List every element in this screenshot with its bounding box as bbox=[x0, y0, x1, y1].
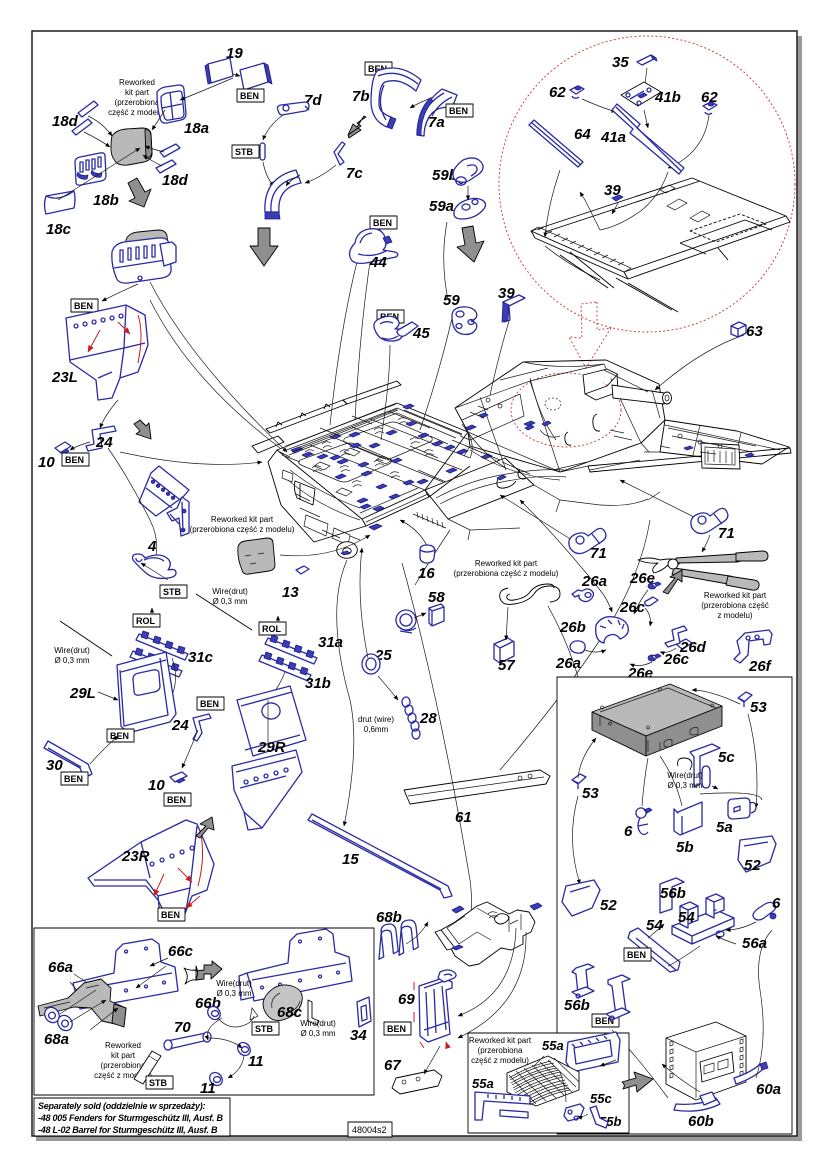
svg-text:Wire(drut): Wire(drut) bbox=[216, 979, 252, 988]
svg-text:68c: 68c bbox=[277, 1004, 303, 1021]
svg-text:Wire(drut): Wire(drut) bbox=[54, 646, 90, 655]
svg-text:53: 53 bbox=[582, 785, 599, 802]
svg-text:59: 59 bbox=[443, 292, 460, 309]
svg-text:15: 15 bbox=[342, 851, 359, 868]
svg-text:5c: 5c bbox=[718, 749, 735, 766]
svg-text:kit part: kit part bbox=[125, 88, 150, 97]
svg-text:Ø 0,3 mm: Ø 0,3 mm bbox=[300, 1029, 335, 1038]
svg-text:10: 10 bbox=[148, 777, 165, 794]
svg-text:STB: STB bbox=[255, 1024, 274, 1034]
svg-text:31b: 31b bbox=[305, 675, 331, 692]
svg-text:ROL: ROL bbox=[262, 624, 282, 634]
svg-text:kit part: kit part bbox=[111, 1051, 136, 1060]
svg-text:66a: 66a bbox=[48, 959, 73, 976]
svg-text:STB: STB bbox=[163, 587, 182, 597]
svg-text:69: 69 bbox=[398, 991, 415, 1008]
svg-text:26c: 26c bbox=[619, 599, 646, 616]
svg-text:67: 67 bbox=[384, 1057, 401, 1074]
svg-text:26d: 26d bbox=[679, 639, 707, 656]
svg-text:STB: STB bbox=[149, 1078, 168, 1088]
svg-text:0,6mm: 0,6mm bbox=[364, 725, 389, 734]
svg-text:18d: 18d bbox=[162, 172, 189, 189]
svg-text:część z modelu): część z modelu) bbox=[471, 1056, 529, 1065]
svg-text:-48 L-02 Barrel for Sturmgesch: -48 L-02 Barrel for Sturmgeschütz III, A… bbox=[38, 1125, 218, 1135]
svg-text:Reworked: Reworked bbox=[105, 1041, 141, 1050]
svg-text:(przerobiona: (przerobiona bbox=[478, 1046, 523, 1055]
svg-text:48004s2: 48004s2 bbox=[352, 1125, 387, 1135]
svg-text:7b: 7b bbox=[352, 88, 370, 105]
svg-text:7a: 7a bbox=[428, 114, 445, 131]
svg-text:54: 54 bbox=[646, 917, 663, 934]
svg-text:(przerobiona część z modelu): (przerobiona część z modelu) bbox=[454, 569, 559, 578]
svg-text:7c: 7c bbox=[346, 165, 363, 182]
svg-text:Reworked kit part: Reworked kit part bbox=[475, 559, 538, 568]
svg-text:70: 70 bbox=[174, 1019, 191, 1036]
svg-text:23R: 23R bbox=[121, 848, 150, 865]
svg-text:18a: 18a bbox=[184, 120, 209, 137]
svg-text:z modelu): z modelu) bbox=[717, 611, 752, 620]
svg-text:Wire(drut): Wire(drut) bbox=[212, 587, 248, 596]
svg-text:4: 4 bbox=[147, 538, 157, 555]
svg-text:10: 10 bbox=[38, 454, 55, 471]
svg-text:(przerobiona część z modelu): (przerobiona część z modelu) bbox=[190, 525, 295, 534]
svg-text:13: 13 bbox=[282, 584, 299, 601]
svg-text:30: 30 bbox=[46, 757, 63, 774]
svg-text:23L: 23L bbox=[51, 369, 78, 386]
svg-text:28: 28 bbox=[419, 710, 437, 727]
svg-text:62: 62 bbox=[549, 84, 566, 101]
svg-text:BEN: BEN bbox=[449, 106, 468, 116]
svg-text:55a: 55a bbox=[542, 1038, 564, 1053]
svg-text:60b: 60b bbox=[688, 1113, 714, 1130]
svg-text:BEN: BEN bbox=[240, 91, 259, 101]
svg-text:56b: 56b bbox=[660, 885, 686, 902]
svg-text:BEN: BEN bbox=[110, 731, 129, 741]
svg-text:61: 61 bbox=[455, 809, 472, 826]
svg-text:(przerobiona: (przerobiona bbox=[101, 1061, 146, 1070]
svg-text:60a: 60a bbox=[756, 1081, 781, 1098]
svg-text:Ø 0,3 mm: Ø 0,3 mm bbox=[54, 656, 89, 665]
svg-text:64: 64 bbox=[574, 126, 591, 143]
svg-text:53: 53 bbox=[750, 699, 767, 716]
svg-text:6: 6 bbox=[772, 895, 781, 912]
svg-text:BEN: BEN bbox=[200, 699, 219, 709]
svg-text:Ø 0,3 mm: Ø 0,3 mm bbox=[216, 989, 251, 998]
svg-text:BEN: BEN bbox=[64, 774, 83, 784]
svg-text:18d: 18d bbox=[52, 113, 79, 130]
svg-text:26a: 26a bbox=[555, 655, 581, 672]
svg-text:26a: 26a bbox=[581, 573, 607, 590]
svg-text:66c: 66c bbox=[168, 943, 194, 960]
svg-text:26f: 26f bbox=[748, 658, 773, 675]
svg-text:(przerobiona część: (przerobiona część bbox=[701, 601, 769, 610]
svg-text:24: 24 bbox=[171, 717, 189, 734]
svg-text:Reworked kit part: Reworked kit part bbox=[704, 591, 767, 600]
svg-text:(przerobiona: (przerobiona bbox=[115, 98, 160, 107]
svg-text:71: 71 bbox=[718, 525, 735, 542]
svg-text:58: 58 bbox=[428, 589, 445, 606]
svg-text:BEN: BEN bbox=[167, 795, 186, 805]
svg-text:Ø 0,3 mm: Ø 0,3 mm bbox=[212, 597, 247, 606]
svg-text:41b: 41b bbox=[654, 89, 681, 106]
svg-text:57: 57 bbox=[498, 657, 515, 674]
svg-text:71: 71 bbox=[590, 545, 607, 562]
svg-text:24: 24 bbox=[95, 434, 113, 451]
svg-text:Separately sold (oddzielnie w: Separately sold (oddzielnie w sprzedaży)… bbox=[38, 1101, 206, 1111]
svg-text:BEN: BEN bbox=[627, 950, 646, 960]
svg-text:STB: STB bbox=[235, 147, 254, 157]
svg-text:44: 44 bbox=[369, 254, 387, 271]
svg-text:35: 35 bbox=[612, 54, 629, 71]
svg-text:5a: 5a bbox=[716, 819, 733, 836]
svg-text:-48 005 Fenders for Sturmgesch: -48 005 Fenders for Sturmgeschütz III, A… bbox=[38, 1113, 223, 1123]
svg-text:41a: 41a bbox=[600, 129, 626, 146]
svg-text:5b: 5b bbox=[676, 839, 694, 856]
svg-text:55c: 55c bbox=[590, 1091, 612, 1106]
svg-text:Reworked kit part: Reworked kit part bbox=[211, 515, 274, 524]
svg-text:BEN: BEN bbox=[74, 301, 93, 311]
svg-text:34: 34 bbox=[350, 1027, 367, 1044]
svg-text:Reworked kit part: Reworked kit part bbox=[469, 1036, 532, 1045]
svg-text:16: 16 bbox=[418, 565, 435, 582]
svg-text:52: 52 bbox=[744, 857, 761, 874]
svg-text:59a: 59a bbox=[429, 198, 454, 215]
svg-text:18b: 18b bbox=[93, 192, 119, 209]
svg-text:BEN: BEN bbox=[65, 455, 84, 465]
svg-text:52: 52 bbox=[600, 897, 617, 914]
svg-text:26b: 26b bbox=[559, 619, 586, 636]
svg-text:63: 63 bbox=[746, 323, 763, 340]
svg-text:11: 11 bbox=[248, 1053, 264, 1070]
svg-text:55a: 55a bbox=[472, 1076, 494, 1091]
svg-text:11: 11 bbox=[200, 1080, 216, 1097]
svg-text:18c: 18c bbox=[46, 221, 72, 238]
svg-text:BEN: BEN bbox=[387, 1024, 406, 1034]
svg-text:BEN: BEN bbox=[373, 218, 392, 228]
svg-text:54: 54 bbox=[678, 909, 695, 926]
svg-text:drut (wire): drut (wire) bbox=[358, 715, 394, 724]
svg-text:BEN: BEN bbox=[161, 910, 180, 920]
svg-text:29L: 29L bbox=[69, 685, 96, 702]
svg-text:31c: 31c bbox=[188, 649, 214, 666]
svg-text:68a: 68a bbox=[44, 1031, 69, 1048]
svg-text:ROL: ROL bbox=[136, 616, 156, 626]
svg-text:Ø 0,3 mm: Ø 0,3 mm bbox=[667, 781, 702, 790]
svg-text:Reworked: Reworked bbox=[119, 78, 155, 87]
svg-text:6: 6 bbox=[624, 823, 633, 840]
svg-text:56b: 56b bbox=[564, 997, 590, 1014]
